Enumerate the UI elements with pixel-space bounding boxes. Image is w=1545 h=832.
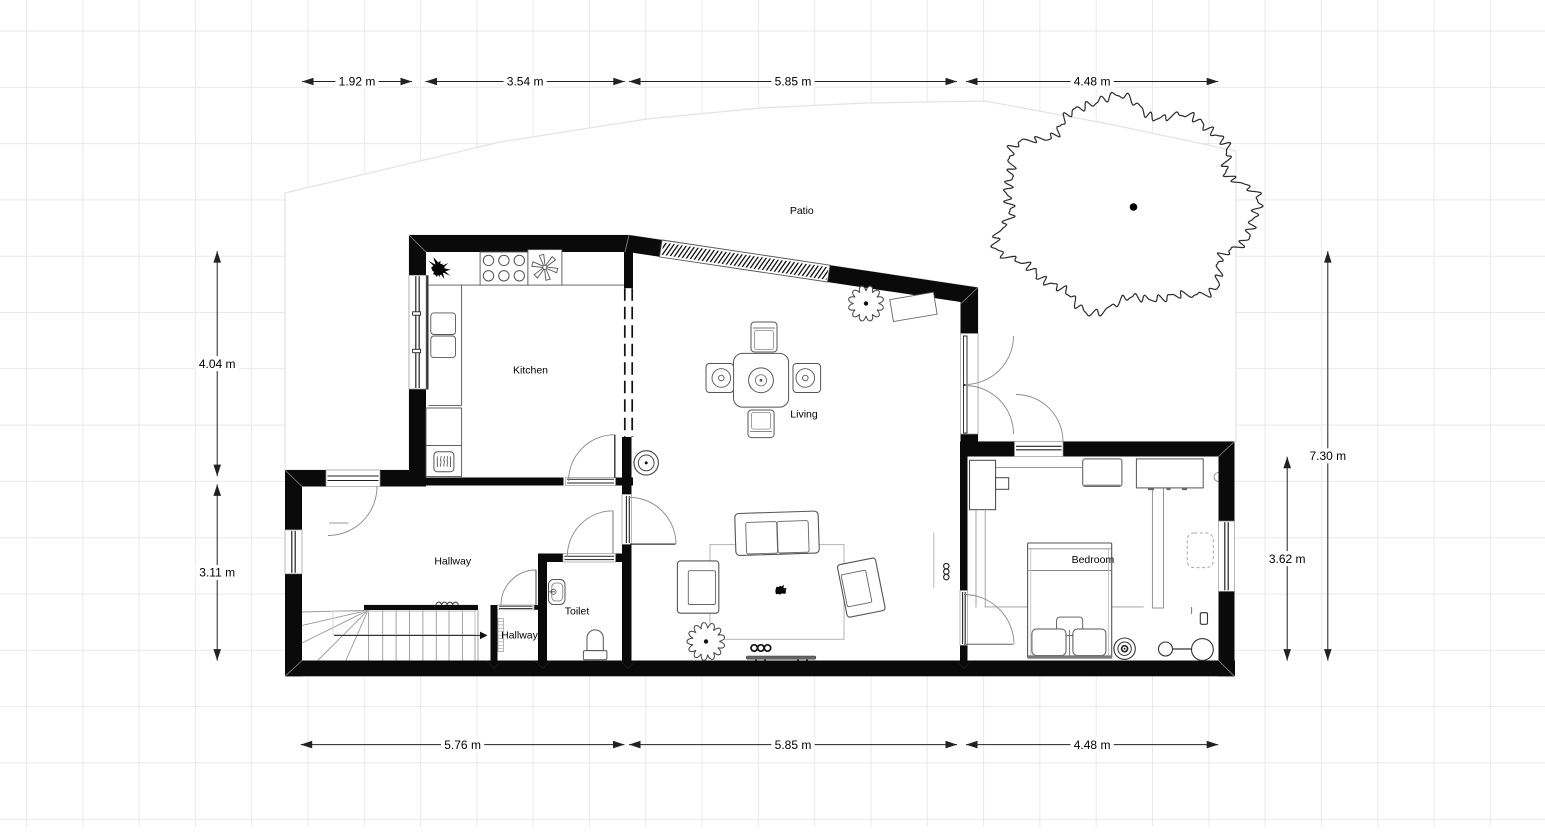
svg-text:7.30 m: 7.30 m (1309, 449, 1346, 463)
svg-text:5.76 m: 5.76 m (444, 738, 481, 752)
svg-text:1.92 m: 1.92 m (339, 75, 376, 89)
svg-text:5.85 m: 5.85 m (775, 738, 812, 752)
svg-text:Patio: Patio (790, 205, 814, 217)
svg-text:5.85 m: 5.85 m (775, 75, 812, 89)
svg-text:4.48 m: 4.48 m (1074, 75, 1111, 89)
svg-text:Bedroom: Bedroom (1072, 554, 1115, 566)
svg-text:Kitchen: Kitchen (513, 365, 548, 377)
svg-text:3.62 m: 3.62 m (1269, 552, 1306, 566)
svg-text:4.04 m: 4.04 m (199, 357, 236, 371)
svg-text:Hallway: Hallway (434, 556, 472, 568)
svg-text:Toilet: Toilet (565, 606, 590, 618)
svg-text:Living: Living (790, 409, 818, 421)
svg-text:3.11 m: 3.11 m (199, 566, 235, 580)
svg-text:Hallway: Hallway (501, 630, 539, 642)
svg-text:4.48 m: 4.48 m (1074, 738, 1111, 752)
svg-text:3.54 m: 3.54 m (507, 75, 544, 89)
